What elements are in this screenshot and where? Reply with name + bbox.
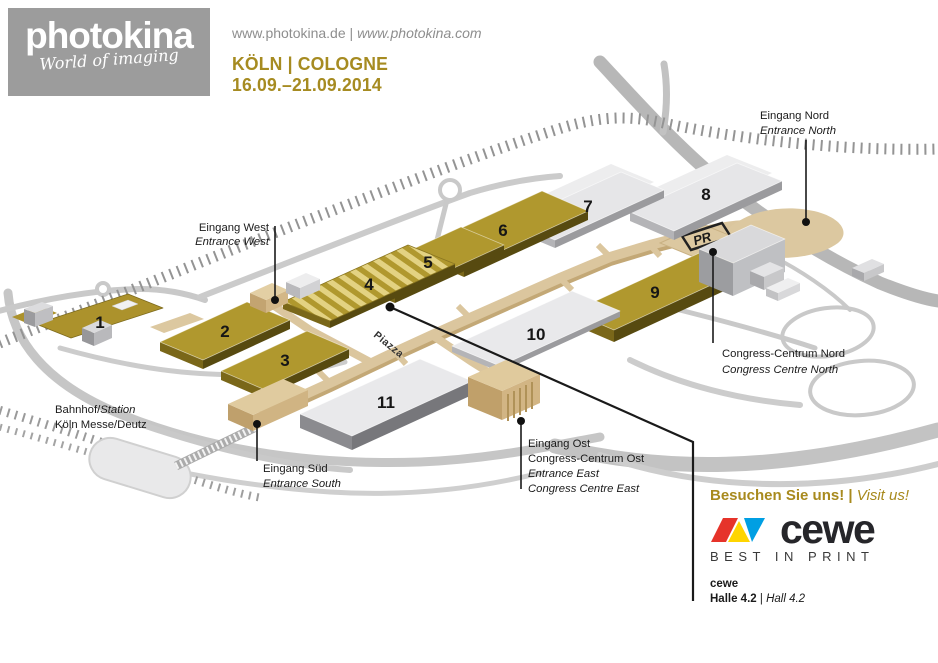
exhibitor-hall-en: Hall 4.2 [766,593,805,605]
website-int: www.photokina.com [357,25,482,41]
station-line-1: Bahnhof/Station [55,404,135,416]
photokina-fairground-map-page: photokina World of imaging www.photokina… [0,0,938,663]
cewe-logo: cewe [710,513,930,545]
hall-6-number: 6 [498,221,507,240]
hall-1-number: 1 [95,313,104,332]
hall-4-number: 4 [364,275,374,294]
photokina-logo: photokina World of imaging [8,8,210,96]
website-separator: | [350,25,354,41]
entrance-east-l2: Congress-Centrum Ost [528,453,645,465]
entrance-south-en: Entrance South [263,478,341,490]
entrance-west-en: Entrance West [195,236,270,248]
website-line: www.photokina.de | www.photokina.com [232,25,482,41]
callout-dot-north [802,218,810,226]
callout-dot-west [271,296,279,304]
train-station [84,428,254,503]
center-roundabout [440,180,460,200]
entrance-north-en: Entrance North [760,125,836,137]
entrance-north-de: Eingang Nord [760,110,829,122]
exhibitor-name: cewe [710,577,930,592]
hall-3-number: 3 [280,351,289,370]
cewe-promo-block: Besuchen Sie uns! | Visit us! cewe BEST … [710,487,930,607]
hall-8-number: 8 [701,185,710,204]
visit-de: Besuchen Sie uns! [710,487,844,504]
label-congress-north: Congress-Centrum Nord Congress Centre No… [722,348,845,376]
visit-separator: | [848,487,852,504]
hall-2-number: 2 [220,322,229,341]
event-location: KÖLN | COLOGNE [232,53,388,75]
website-de: www.photokina.de [232,25,346,41]
hall-7-number: 7 [583,197,592,216]
entrance-west-de: Eingang West [199,222,270,234]
exhibitor-hall-de: Halle 4.2 [710,593,757,605]
cewe-wordmark: cewe [780,516,874,542]
entrance-east-l1: Eingang Ost [528,438,591,450]
event-dates: 16.09.–21.09.2014 [232,74,382,96]
west-roundabout [97,283,109,295]
cewe-tagline: BEST IN PRINT [710,549,930,564]
hall-11-number: 11 [377,393,395,412]
congress-north-en: Congress Centre North [722,364,838,376]
cewe-logo-mark [710,515,770,543]
callout-dot-congress-north [709,248,717,256]
congress-north-de: Congress-Centrum Nord [722,348,845,360]
entrance-east-l4: Congress Centre East [528,483,640,495]
callout-dot-cewe [386,303,395,312]
label-entrance-north: Eingang Nord Entrance North [760,110,836,137]
hall-10-number: 10 [527,325,546,344]
visit-us-line: Besuchen Sie uns! | Visit us! [710,487,930,504]
exhibitor-hall-separator: | [760,593,763,605]
callout-dot-east [517,417,525,425]
callout-dot-south [253,420,261,428]
exhibitor-hall: Halle 4.2 | Hall 4.2 [710,592,930,607]
exhibitor-info: cewe Halle 4.2 | Hall 4.2 [710,577,930,607]
station-line-2: Köln Messe/Deutz [55,419,147,431]
entrance-east-l3: Entrance East [528,468,600,480]
entrance-south-de: Eingang Süd [263,463,328,475]
hall-5-number: 5 [423,253,432,272]
hall-9-number: 9 [650,283,659,302]
visit-en: Visit us! [857,487,909,504]
